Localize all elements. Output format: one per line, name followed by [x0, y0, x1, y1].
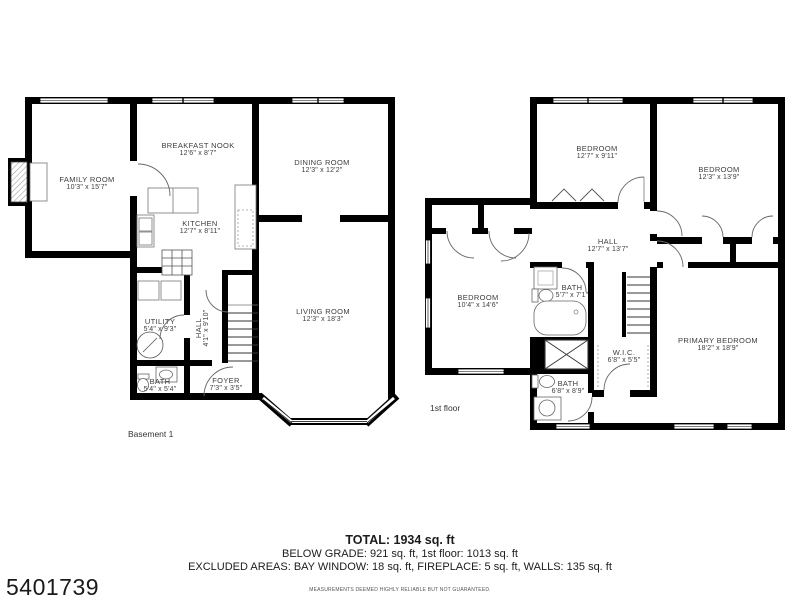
disclaimer-text: MEASUREMENTS DEEMED HIGHLY RELIABLE BUT …: [0, 587, 800, 593]
first-floor-plan-walls: [425, 97, 785, 430]
area-summary: TOTAL: 1934 sq. ft BELOW GRADE: 921 sq. …: [0, 533, 800, 593]
excluded-areas-text: EXCLUDED AREAS: BAY WINDOW: 18 sq. ft, F…: [0, 561, 800, 573]
basement-bay-window: [260, 396, 397, 425]
first-floor-stairs: [627, 277, 650, 333]
basement-windows: [40, 98, 344, 103]
total-area-text: TOTAL: 1934 sq. ft: [0, 533, 800, 547]
first-floor-door-arcs: [447, 177, 773, 421]
listing-id: 5401739: [6, 574, 99, 600]
basement-plan-walls: [8, 97, 395, 400]
area-breakdown-text: BELOW GRADE: 921 sq. ft, 1st floor: 1013…: [0, 548, 800, 560]
floor-plan-drawing: [0, 0, 800, 600]
floor-plan-page: FAMILY ROOM 10'3" x 15'7" BREAKFAST NOOK…: [0, 0, 800, 600]
